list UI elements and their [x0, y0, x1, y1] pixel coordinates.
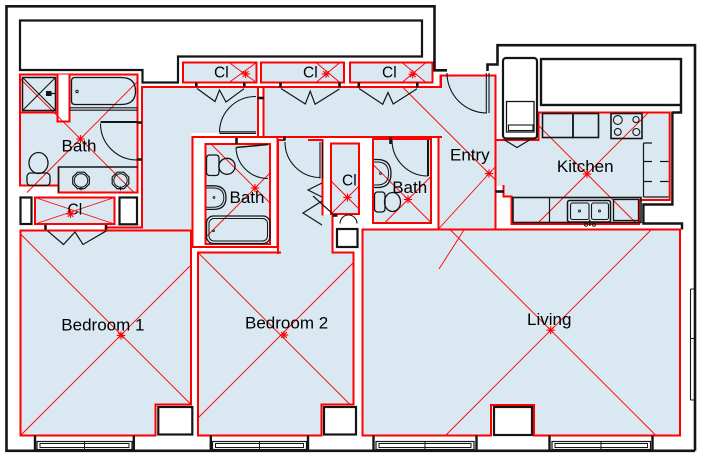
svg-text:Entry: Entry: [450, 146, 490, 165]
svg-text:Bath: Bath: [392, 178, 427, 197]
svg-text:Living: Living: [527, 310, 571, 329]
svg-text:Cl: Cl: [382, 65, 397, 82]
svg-text:Cl: Cl: [214, 65, 229, 82]
svg-text:Bath: Bath: [230, 188, 265, 207]
svg-text:Bedroom 2: Bedroom 2: [245, 314, 328, 333]
svg-text:Bedroom 1: Bedroom 1: [61, 315, 144, 334]
svg-text:Cl: Cl: [342, 173, 357, 190]
svg-text:Cl: Cl: [303, 65, 318, 82]
svg-text:Cl: Cl: [68, 202, 83, 219]
